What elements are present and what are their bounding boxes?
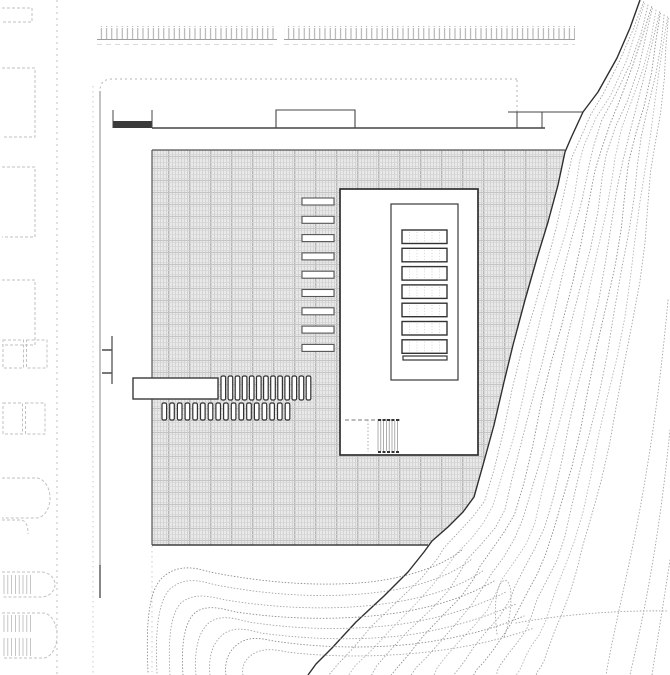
stall bbox=[306, 376, 311, 400]
stall bbox=[231, 403, 236, 420]
stall bbox=[270, 403, 275, 420]
lot-outline bbox=[3, 340, 24, 368]
site-plan bbox=[0, 0, 670, 675]
lot-outline bbox=[2, 520, 28, 534]
contour-line bbox=[536, 18, 668, 675]
stall bbox=[285, 376, 290, 400]
ladder-marker bbox=[102, 336, 112, 384]
louver-slot bbox=[302, 235, 334, 242]
contour-line bbox=[516, 17, 668, 675]
contour-line bbox=[630, 430, 670, 675]
louver-slot bbox=[302, 253, 334, 260]
site-boundary bbox=[100, 79, 517, 112]
boundary-line bbox=[100, 79, 517, 91]
contour-line bbox=[516, 611, 668, 623]
stall bbox=[257, 376, 262, 400]
louver-slot bbox=[302, 271, 334, 278]
stall bbox=[278, 403, 283, 420]
lot-outline bbox=[2, 613, 57, 658]
street-lots bbox=[2, 8, 57, 658]
louver-slot bbox=[302, 216, 334, 223]
canopy bbox=[276, 110, 355, 128]
site-plan-svg bbox=[0, 0, 670, 675]
stall bbox=[239, 403, 244, 420]
stall bbox=[193, 403, 198, 420]
contour-line bbox=[182, 581, 494, 675]
lot-outline bbox=[2, 572, 55, 597]
pier-ramp bbox=[133, 378, 218, 399]
building bbox=[340, 189, 478, 455]
stall bbox=[221, 376, 226, 400]
stall bbox=[228, 376, 233, 400]
stall bbox=[216, 403, 221, 420]
lot-outline bbox=[2, 478, 50, 518]
plaza-louvers bbox=[302, 198, 334, 351]
wall-section-bar bbox=[113, 121, 152, 128]
stall bbox=[201, 403, 206, 420]
louver-slot bbox=[302, 326, 334, 333]
stall bbox=[292, 376, 297, 400]
contour-line bbox=[606, 300, 668, 675]
contour-line bbox=[210, 604, 516, 675]
contour-line bbox=[169, 570, 484, 675]
stall bbox=[299, 376, 304, 400]
stall bbox=[235, 376, 240, 400]
louver-slot bbox=[302, 308, 334, 315]
tick-band-segment bbox=[97, 26, 277, 39]
stall bbox=[262, 403, 267, 420]
stall bbox=[170, 403, 175, 420]
stall bbox=[247, 403, 252, 420]
stall bbox=[249, 376, 254, 400]
lot-outline bbox=[2, 167, 35, 237]
louver-slot bbox=[302, 344, 334, 351]
stall bbox=[208, 403, 213, 420]
stall bbox=[254, 403, 259, 420]
lot-outline bbox=[27, 340, 48, 368]
north-wall bbox=[113, 110, 583, 128]
stall bbox=[264, 376, 269, 400]
louver-slot bbox=[302, 290, 334, 297]
stall bbox=[285, 403, 290, 420]
lot-outline bbox=[3, 403, 23, 434]
lot-outline bbox=[26, 403, 46, 434]
lot-outline bbox=[2, 280, 35, 345]
stall bbox=[242, 376, 247, 400]
stall bbox=[224, 403, 229, 420]
lot-outline bbox=[2, 8, 32, 22]
tick-band-segment bbox=[284, 26, 575, 39]
stall bbox=[271, 376, 276, 400]
parking-tick-band bbox=[97, 26, 575, 45]
contour-line bbox=[652, 560, 670, 675]
street-lines bbox=[57, 0, 152, 675]
stall bbox=[185, 403, 190, 420]
skylight-end-bar bbox=[403, 356, 447, 360]
louver-slot bbox=[302, 198, 334, 205]
contour-line bbox=[243, 628, 534, 675]
stall bbox=[162, 403, 167, 420]
contour-line bbox=[497, 15, 664, 675]
stall bbox=[177, 403, 182, 420]
lot-outline bbox=[2, 68, 35, 137]
contour-line bbox=[196, 592, 506, 675]
stall bbox=[278, 376, 283, 400]
